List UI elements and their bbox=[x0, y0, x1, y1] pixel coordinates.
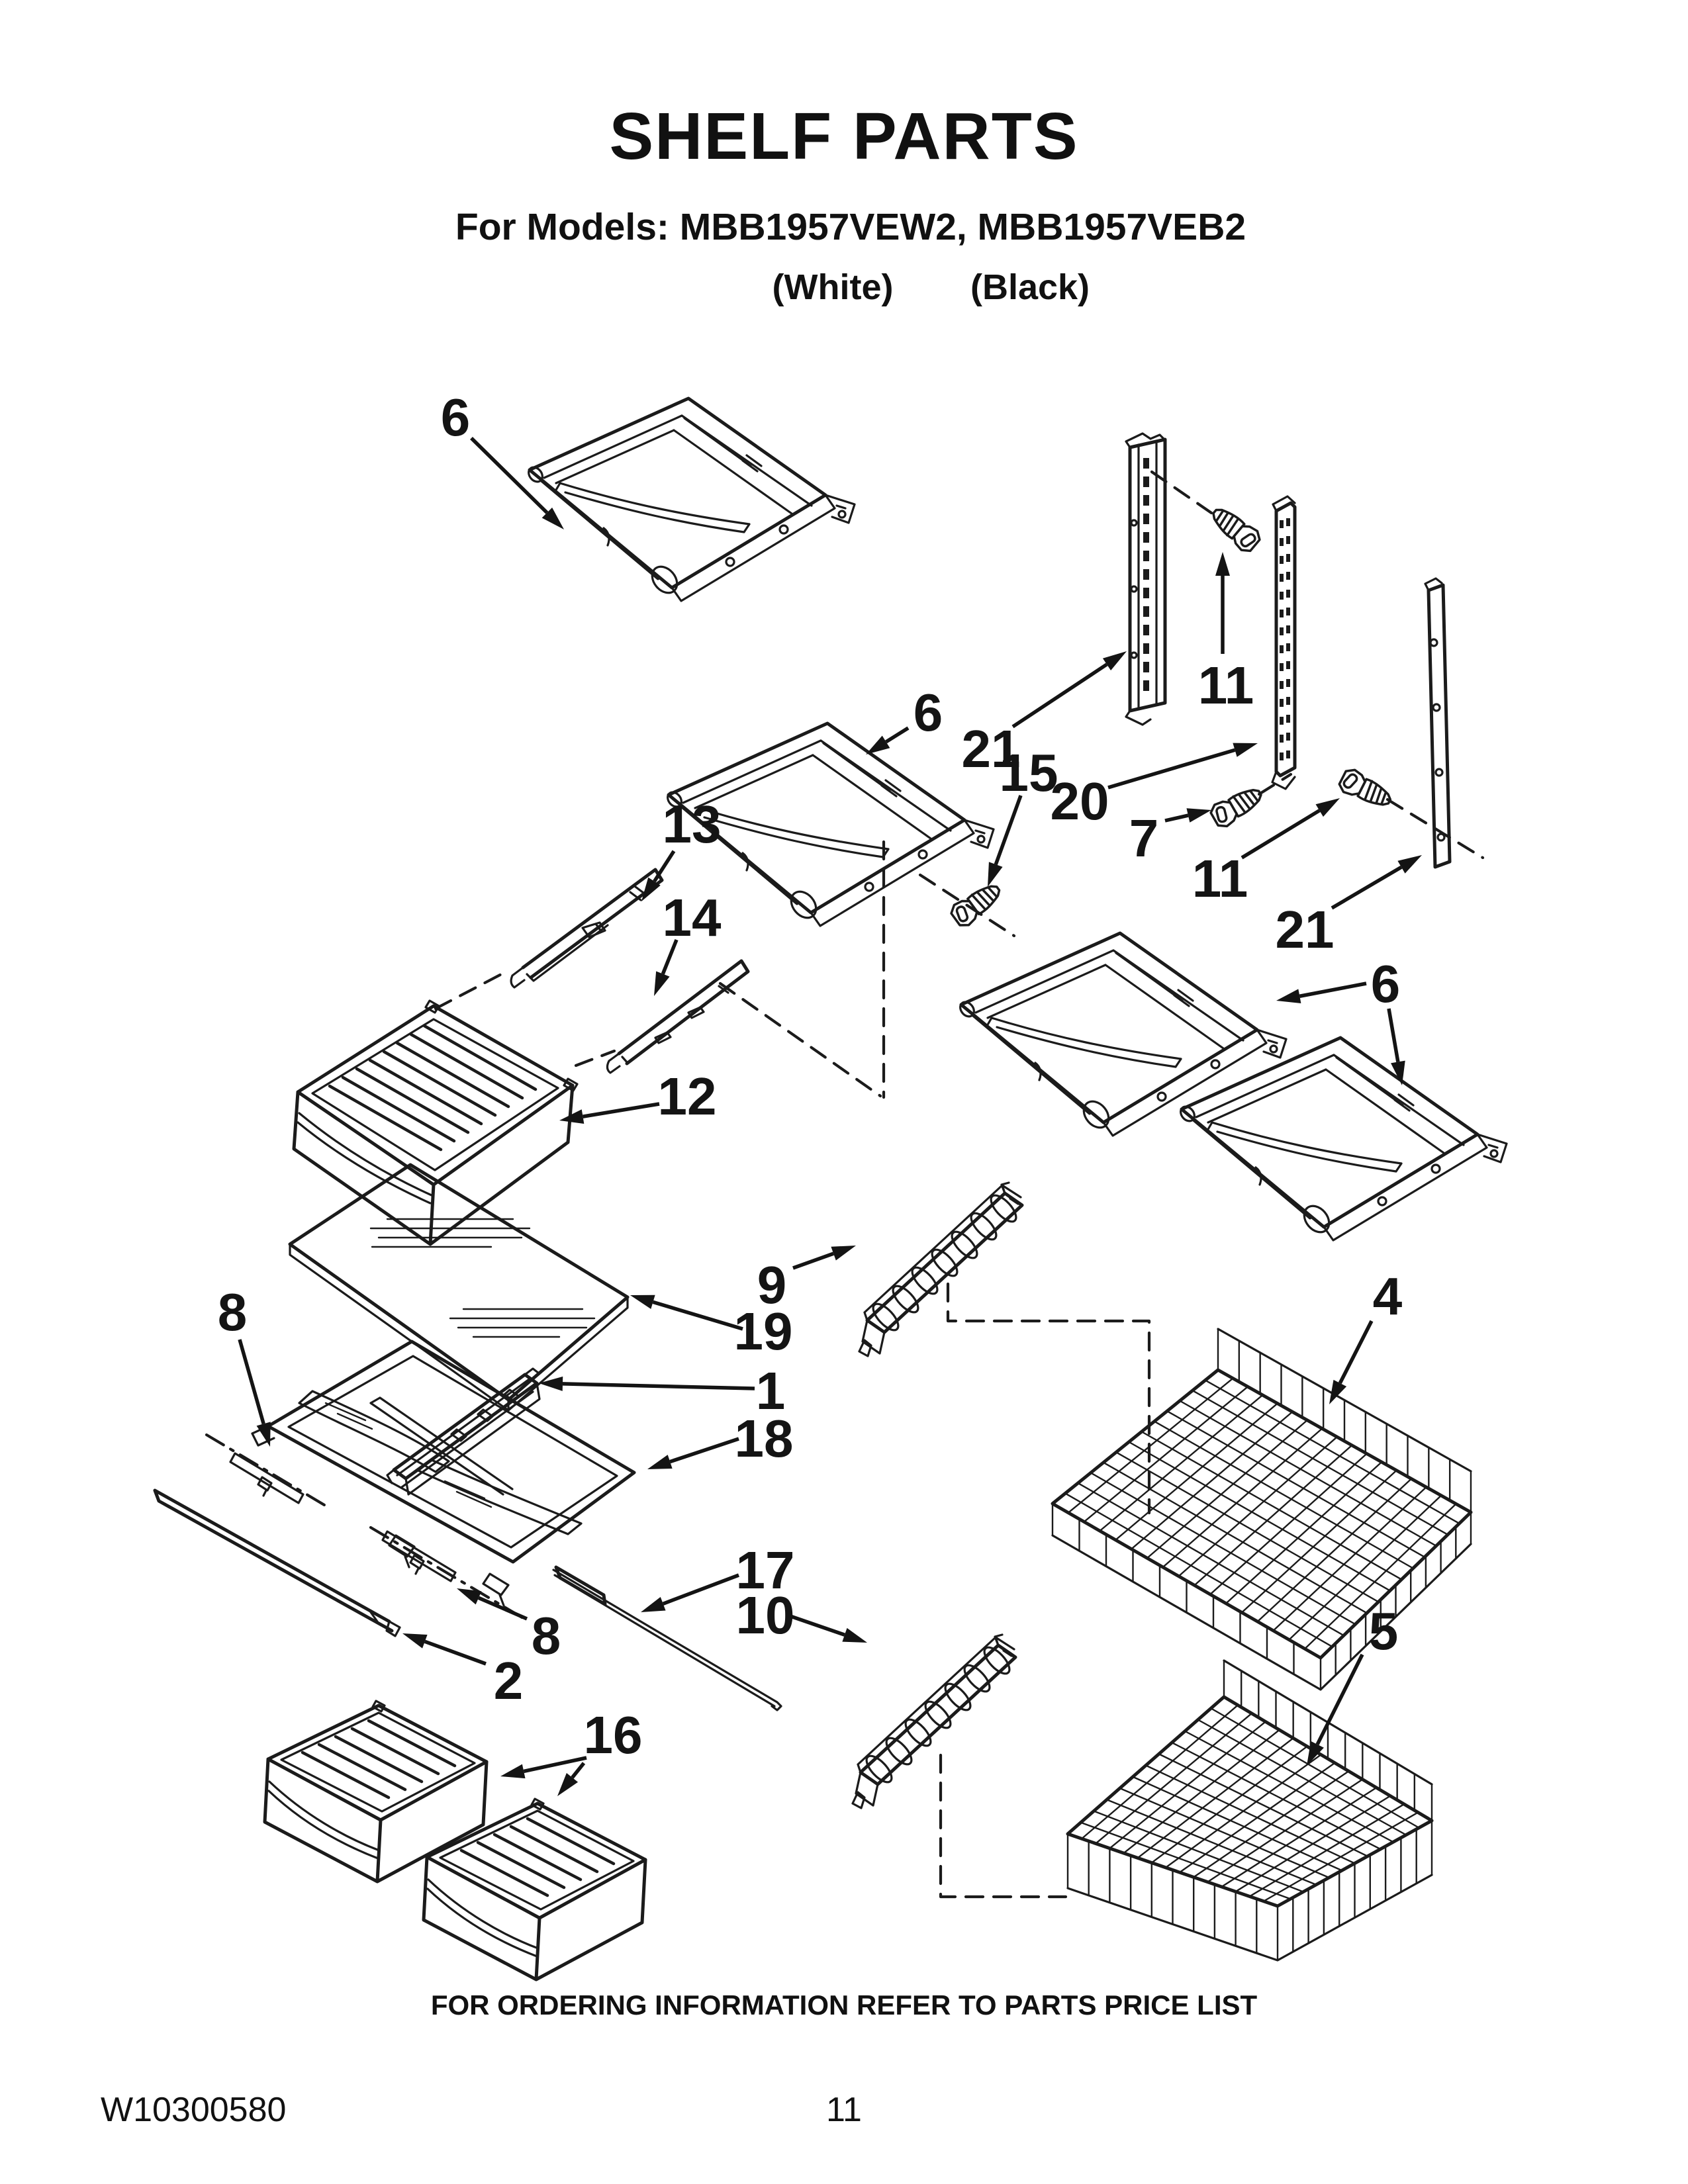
callout-7-7: 7 bbox=[1129, 809, 1159, 868]
callout-arrowhead-9 bbox=[831, 1246, 856, 1260]
parts-catalog-page: SHELF PARTS For Models: MBB1957VEW2, MBB… bbox=[0, 0, 1688, 2184]
basket-line bbox=[1068, 1697, 1432, 1906]
callout-arrow-16 bbox=[572, 1763, 584, 1778]
callout-arrow-6 bbox=[1389, 1009, 1398, 1062]
callout-arrow-5 bbox=[1317, 1655, 1362, 1745]
finish-black: (Black) bbox=[970, 267, 1090, 307]
callout-arrow-19 bbox=[653, 1302, 743, 1329]
callout-12-12: 12 bbox=[658, 1067, 717, 1126]
screw-11-right bbox=[1337, 766, 1395, 812]
callout-arrow-18 bbox=[670, 1439, 739, 1462]
basket-line bbox=[1053, 1370, 1471, 1658]
callout-8-20: 8 bbox=[532, 1606, 561, 1665]
callout-6-0: 6 bbox=[441, 388, 471, 447]
callout-5-24: 5 bbox=[1369, 1602, 1399, 1661]
callout-arrowhead-11 bbox=[1316, 798, 1340, 817]
callout-13-2: 13 bbox=[663, 795, 722, 854]
callout-arrow-2 bbox=[425, 1641, 486, 1664]
rail-20-slots bbox=[1280, 518, 1290, 760]
callout-arrowhead-1 bbox=[539, 1377, 563, 1391]
callout-arrowhead-6 bbox=[866, 736, 890, 754]
shelf-rail-1 bbox=[387, 1369, 539, 1494]
callout-arrowhead-7 bbox=[1186, 808, 1211, 822]
callout-11-8: 11 bbox=[1198, 656, 1254, 715]
callout-arrow-6 bbox=[886, 728, 908, 742]
callout-18-16: 18 bbox=[735, 1409, 794, 1468]
callout-arrow-21 bbox=[1332, 867, 1401, 908]
callout-arrowhead-2 bbox=[402, 1633, 428, 1649]
callout-6-1: 6 bbox=[914, 683, 943, 742]
basket-line bbox=[1053, 1535, 1471, 1690]
basket-line bbox=[1224, 1661, 1432, 1821]
cantilever-shelf-6-right-upper bbox=[957, 933, 1286, 1136]
callout-21-10: 21 bbox=[1276, 900, 1335, 959]
basket-line bbox=[1065, 1379, 1459, 1649]
assembly-dash-lines bbox=[207, 472, 1483, 1897]
callout-14-3: 14 bbox=[663, 888, 722, 947]
callout-arrowhead-20 bbox=[1233, 743, 1258, 757]
mounting-rail-21-right bbox=[1425, 578, 1450, 867]
basket-line bbox=[1068, 1875, 1432, 1960]
callout-arrow-13 bbox=[655, 851, 674, 882]
basket-line bbox=[1068, 1821, 1432, 1960]
basket-line bbox=[1081, 1705, 1419, 1901]
callout-arrowhead-21 bbox=[1103, 651, 1127, 670]
trim-strip-2 bbox=[155, 1490, 400, 1636]
callout-6-11: 6 bbox=[1371, 954, 1401, 1013]
callout-arrow-21 bbox=[1013, 664, 1107, 727]
callout-20-6: 20 bbox=[1051, 772, 1109, 831]
basket-divider-9 bbox=[859, 1183, 1022, 1356]
finish-white: (White) bbox=[773, 267, 894, 307]
callout-arrow-20 bbox=[1108, 750, 1235, 788]
glass-shelf-19 bbox=[290, 1165, 628, 1410]
document-number: W10300580 bbox=[101, 2091, 286, 2129]
mounting-rail-20 bbox=[1272, 496, 1295, 789]
callout-2-21: 2 bbox=[494, 1651, 524, 1710]
page-title: SHELF PARTS bbox=[609, 99, 1078, 173]
callout-arrowhead-14 bbox=[654, 971, 670, 996]
callout-15-5: 15 bbox=[1000, 743, 1058, 802]
basket-divider-10 bbox=[853, 1635, 1015, 1808]
callout-10-19: 10 bbox=[736, 1586, 795, 1645]
callout-arrowhead-19 bbox=[630, 1295, 655, 1309]
callout-arrow-1 bbox=[563, 1384, 755, 1388]
callout-arrow-7 bbox=[1165, 815, 1188, 821]
header: SHELF PARTS For Models: MBB1957VEW2, MBB… bbox=[455, 99, 1246, 307]
callout-arrow-9 bbox=[793, 1253, 833, 1268]
wire-basket-5 bbox=[1068, 1661, 1432, 1960]
ice-tray-12 bbox=[294, 1001, 577, 1244]
screw-11-top bbox=[1207, 502, 1263, 555]
callout-arrow-6 bbox=[1299, 983, 1366, 996]
screw-15 bbox=[949, 878, 1006, 929]
cantilever-shelf-6-right-lower bbox=[1178, 1038, 1507, 1240]
callout-arrow-4 bbox=[1340, 1321, 1372, 1383]
callout-arrow-12 bbox=[583, 1104, 659, 1116]
callout-arrow-10 bbox=[790, 1616, 845, 1635]
shelf-clip-8-left bbox=[230, 1453, 303, 1503]
callout-arrow-17 bbox=[663, 1575, 739, 1604]
basket-line bbox=[1053, 1504, 1471, 1690]
slide-rail-13 bbox=[511, 870, 662, 987]
callout-arrowhead-6 bbox=[1276, 989, 1301, 1003]
cantilever-shelf-6-top bbox=[526, 398, 855, 601]
callout-4-23: 4 bbox=[1373, 1267, 1403, 1326]
callout-arrowhead-17 bbox=[641, 1597, 666, 1612]
footer: FOR ORDERING INFORMATION REFER TO PARTS … bbox=[101, 1989, 1258, 2129]
callout-19-14: 19 bbox=[734, 1302, 793, 1361]
callout-arrowhead-15 bbox=[988, 862, 1003, 887]
callout-arrowhead-13 bbox=[641, 878, 661, 901]
page-number: 11 bbox=[826, 2091, 862, 2129]
callout-arrow-8 bbox=[240, 1340, 263, 1424]
callout-arrow-15 bbox=[996, 796, 1021, 864]
callout-arrow-11 bbox=[1242, 811, 1319, 858]
slide-rail-14 bbox=[607, 961, 748, 1073]
callout-arrowhead-11 bbox=[1215, 552, 1230, 576]
callout-11-9: 11 bbox=[1192, 849, 1248, 908]
callout-8-17: 8 bbox=[218, 1283, 248, 1342]
callout-arrowhead-16 bbox=[500, 1764, 526, 1779]
screw-7 bbox=[1208, 782, 1266, 830]
crisper-drawer-16-right bbox=[424, 1799, 645, 1979]
ordering-note: FOR ORDERING INFORMATION REFER TO PARTS … bbox=[431, 1989, 1258, 2021]
crisper-drawer-16-left bbox=[265, 1701, 487, 1882]
shelf-parts-diagram: SHELF PARTS For Models: MBB1957VEW2, MBB… bbox=[0, 0, 1688, 2184]
callout-arrowhead-10 bbox=[842, 1628, 867, 1643]
models-line: For Models: MBB1957VEW2, MBB1957VEB2 bbox=[455, 206, 1246, 248]
wire-basket-4 bbox=[1053, 1329, 1471, 1690]
rail-21-left-slots bbox=[1143, 458, 1149, 691]
callout-16-22: 16 bbox=[584, 1706, 643, 1764]
callout-arrowhead-8 bbox=[457, 1588, 481, 1604]
callout-arrowhead-18 bbox=[647, 1455, 673, 1469]
callout-arrowhead-21 bbox=[1397, 855, 1422, 874]
